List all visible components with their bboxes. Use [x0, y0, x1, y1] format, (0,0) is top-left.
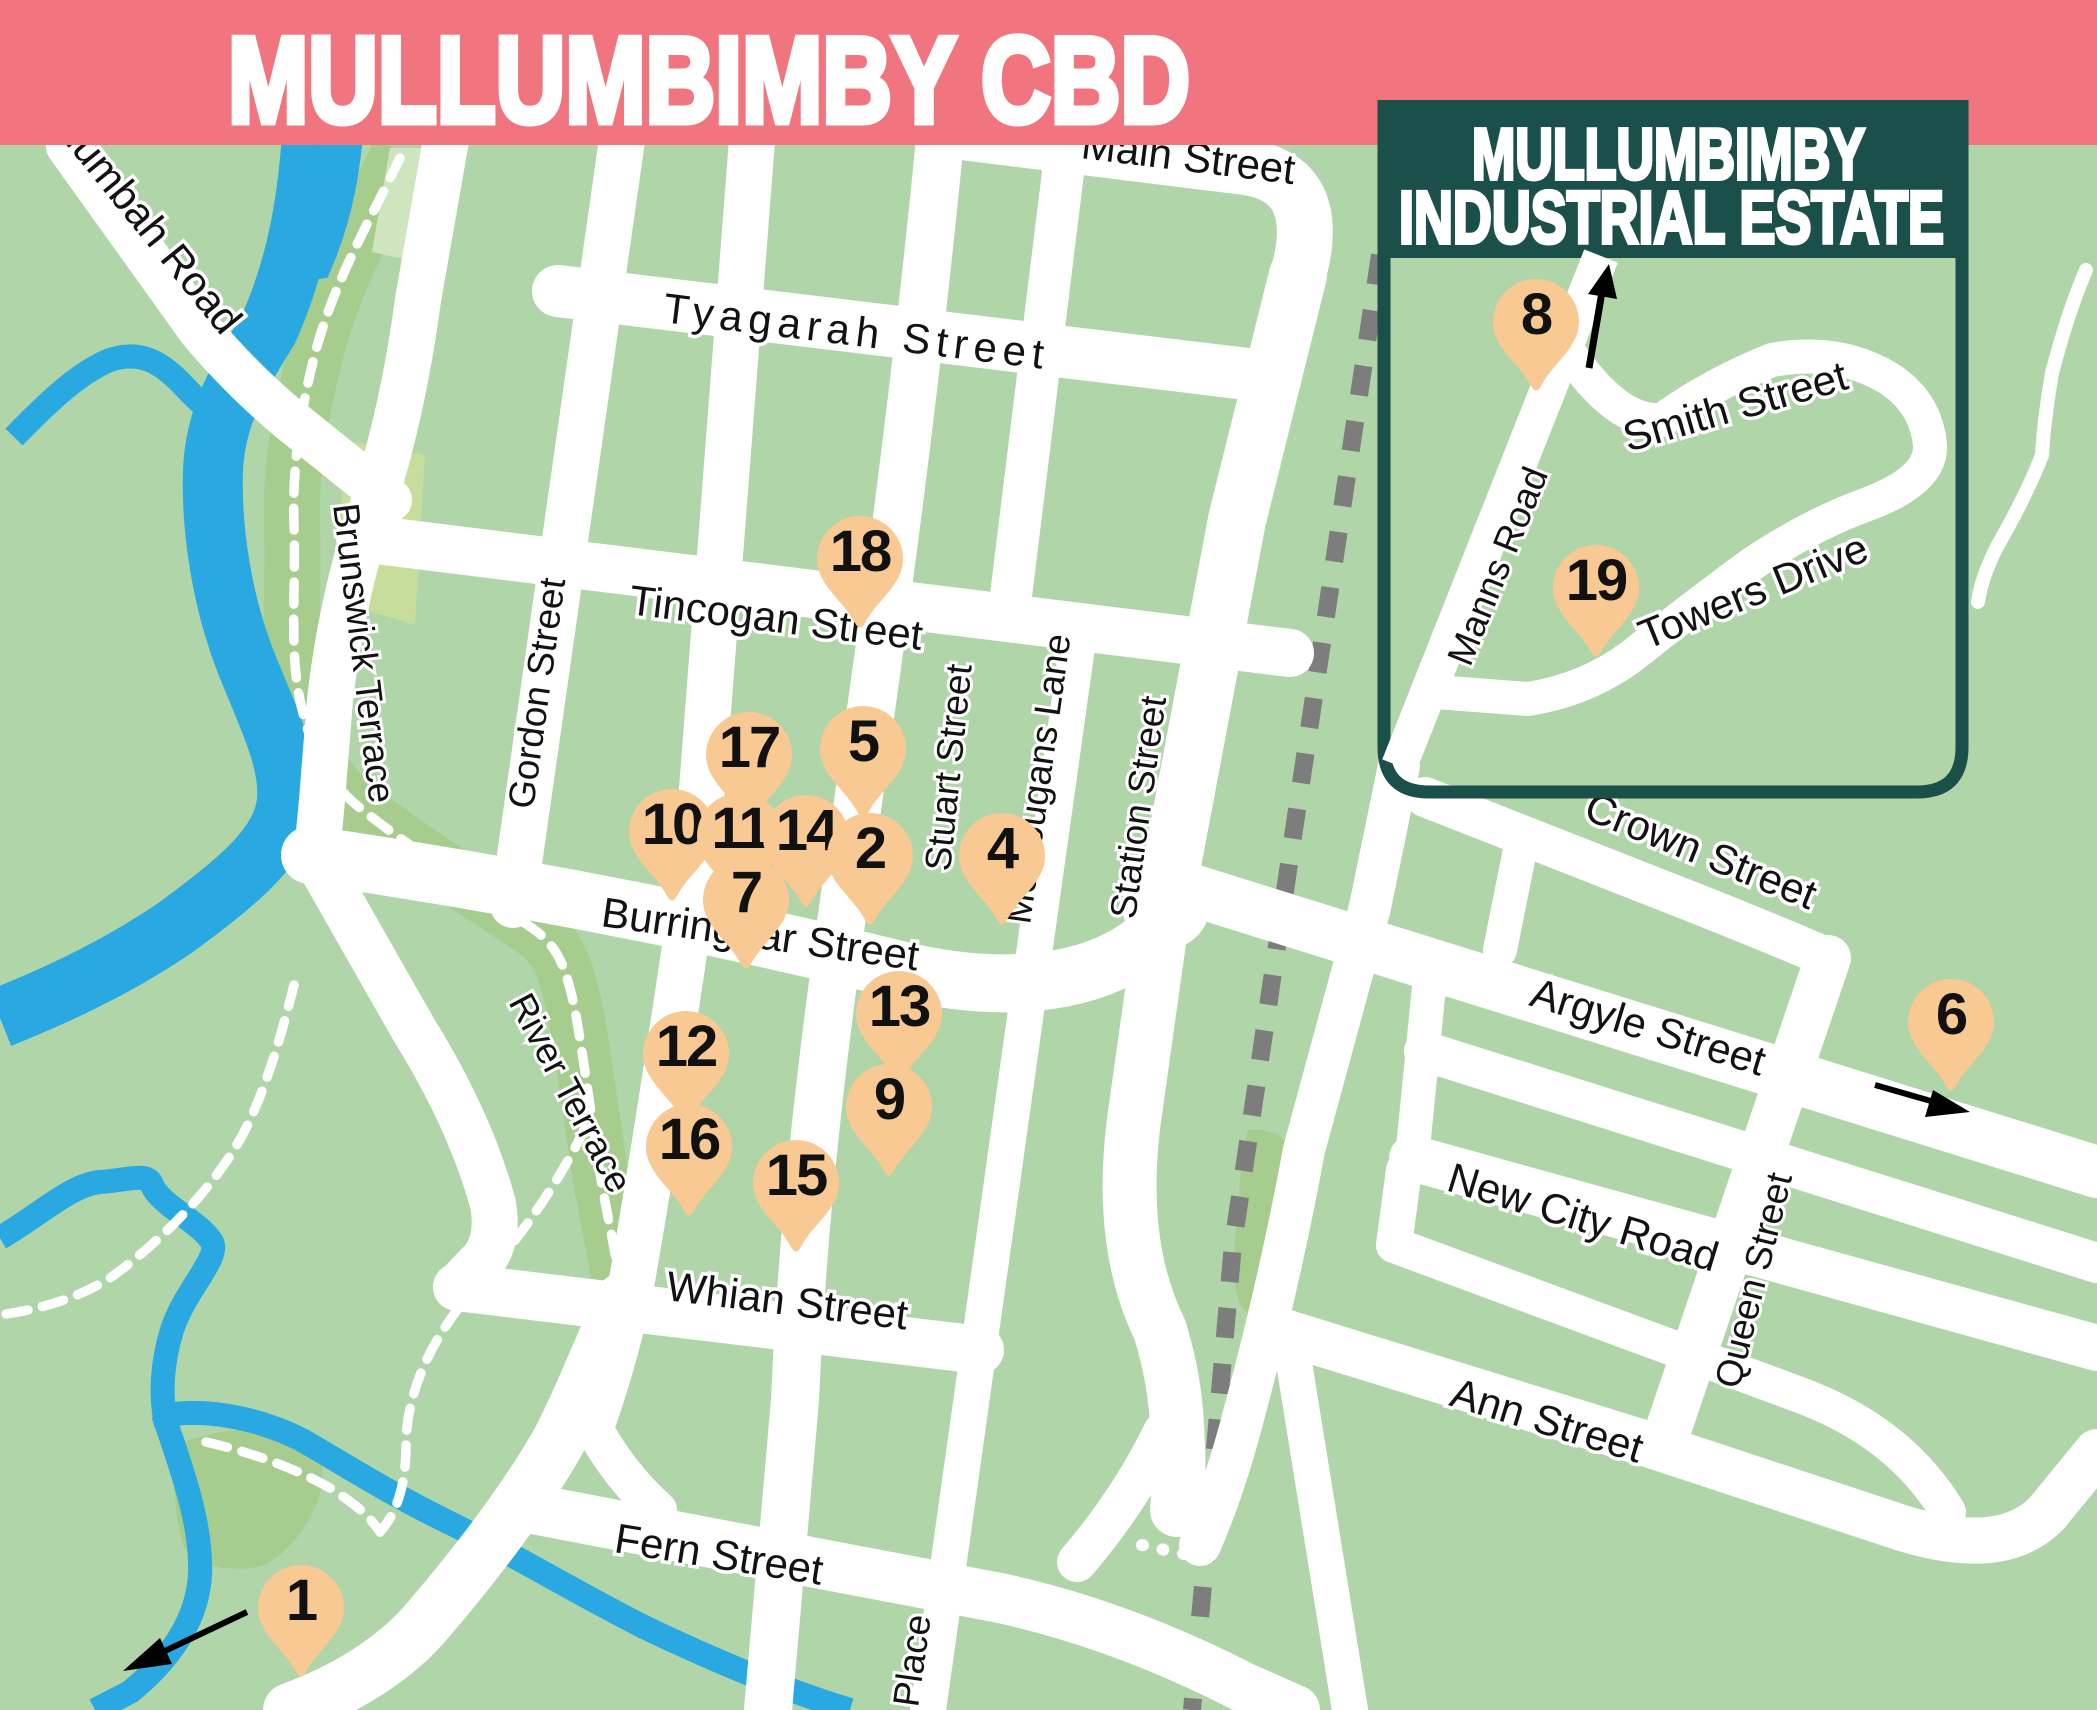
svg-text:1: 1 [286, 1568, 317, 1633]
svg-text:9: 9 [874, 1067, 905, 1132]
svg-text:10: 10 [642, 792, 703, 857]
svg-text:6: 6 [1936, 982, 1967, 1047]
svg-text:8: 8 [1521, 282, 1552, 347]
svg-text:18: 18 [830, 519, 891, 584]
svg-text:INDUSTRIAL ESTATE: INDUSTRIAL ESTATE [1399, 176, 1944, 259]
svg-text:13: 13 [869, 974, 930, 1039]
svg-text:MULLUMBIMBY CBD: MULLUMBIMBY CBD [228, 12, 1190, 148]
svg-text:7: 7 [731, 860, 761, 925]
svg-text:11: 11 [711, 796, 769, 861]
svg-text:4: 4 [987, 816, 1019, 881]
svg-text:15: 15 [766, 1143, 827, 1208]
svg-text:19: 19 [1566, 548, 1627, 613]
svg-text:2: 2 [855, 816, 885, 881]
svg-text:5: 5 [848, 709, 879, 774]
svg-text:16: 16 [659, 1107, 720, 1172]
svg-text:17: 17 [719, 715, 780, 780]
svg-text:12: 12 [656, 1014, 717, 1079]
